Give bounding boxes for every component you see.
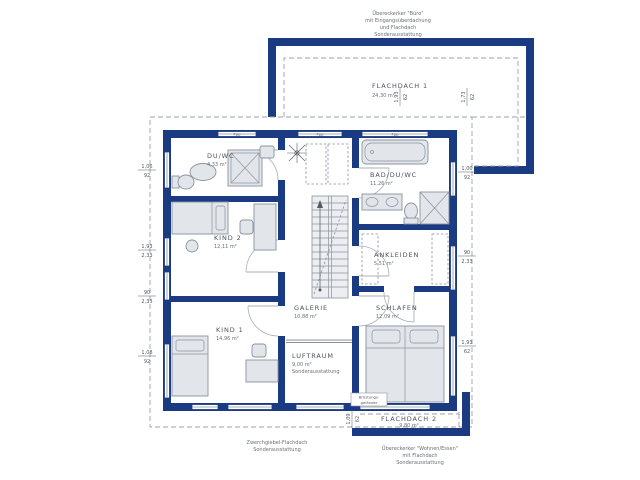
room-area-ankleiden: 5,51 m²	[374, 261, 394, 267]
dim-text: 1,08	[141, 350, 152, 356]
room-label-ankleiden: ANKLEIDEN	[374, 251, 419, 259]
dimensions-left: 1,06 92 1,93 2,33 90 2,33 1,08 92	[138, 164, 156, 365]
room-label-galerie: GALERIE	[294, 304, 328, 312]
room-area-kind2: 12,11 m²	[214, 244, 237, 250]
double-washbasin-icon	[362, 194, 402, 210]
annotation-bottom-right: Übereckerker "Wohnen/Essen" mit Flachdac…	[382, 445, 458, 466]
dim-text: 62	[403, 94, 409, 100]
room-area-schlafen: 12,09 m²	[376, 314, 399, 320]
bed-icon	[172, 336, 208, 396]
kind1-furniture	[172, 336, 278, 396]
dim-text: 92	[464, 175, 470, 181]
room-label-flachdach2: FLACHDACH 2	[381, 415, 437, 423]
gallery-railing	[286, 340, 352, 343]
dim-text: 1,00	[461, 166, 472, 172]
annotation-top-line1: Übereckerker "Büro"	[372, 10, 423, 17]
annotation-top-line2: mit Eingangsüberdachung	[365, 18, 431, 24]
toilet-tank-icon	[404, 218, 418, 224]
room-area-duwc: 4,33 m²	[207, 162, 227, 168]
room-area-flachdach2: 9,80 m²	[399, 423, 419, 429]
railing-label: Brüstungs- geländer	[351, 393, 387, 406]
stool-icon	[186, 240, 198, 252]
floorplan-canvas: Übereckerker "Büro" mit Eingangsüberdach…	[0, 0, 640, 480]
room-label-luftraum: LUFTRAUM	[292, 352, 334, 360]
staircase	[312, 196, 348, 298]
annotation-br-line2: mit Flachdach	[402, 453, 437, 459]
dim-text: 62	[355, 416, 361, 422]
ankleiden-wardrobes	[362, 234, 448, 284]
room-area-luftraum: 9,00 m²	[292, 362, 312, 368]
annotation-bottom-center: Zwerchgiebel-Flachdach Sonderausstattung	[247, 440, 308, 453]
annotation-bc-line1: Zwerchgiebel-Flachdach	[247, 440, 308, 446]
dimensions-right: 1,00 92 90 2,33 1,93 62	[458, 166, 476, 355]
dim-text: 90	[464, 250, 470, 256]
desk-icon	[254, 204, 276, 250]
railing-label-line2: geländer	[361, 400, 378, 405]
annotation-br-line1: Übereckerker "Wohnen/Essen"	[382, 445, 458, 452]
dim-text: 2,33	[141, 299, 152, 305]
dim-text: 92	[144, 173, 150, 179]
annotation-top-line4: Sonderausstattung	[374, 32, 422, 38]
railing-label-line1: Brüstungs-	[359, 395, 380, 400]
dim-text: 2,33	[461, 259, 472, 265]
dim-text: 92	[144, 359, 150, 365]
desk-icon	[246, 360, 278, 382]
room-label-duwc: DU/WC	[207, 152, 234, 160]
dim-text: 62	[470, 94, 476, 100]
bathtub-icon	[362, 140, 428, 164]
dim-text: 62	[464, 349, 470, 355]
corner-basin-icon	[260, 146, 274, 158]
chair-icon	[252, 344, 266, 357]
room-label-bad: BAD/DU/WC	[370, 171, 417, 179]
room-label-kind2: KIND 2	[214, 234, 242, 242]
dim-text: 90	[144, 290, 150, 296]
room-note-luftraum: Sonderausstattung	[292, 369, 340, 375]
chair-icon	[240, 220, 253, 234]
dim-text: 1,93	[394, 91, 400, 102]
dim-text: 1,73	[461, 91, 467, 102]
window-type-label-2: Fpp	[316, 132, 324, 137]
room-area-kind1: 14,96 m²	[216, 336, 239, 342]
dim-text: 2,33	[141, 253, 152, 259]
plant-icon	[287, 143, 307, 163]
dimensions-top: 1,93 62 1,73 62	[394, 88, 476, 106]
dim-text: 1,93	[141, 244, 152, 250]
room-area-flachdach1: 24,30 m²	[372, 93, 395, 99]
dim-text: 1,09	[346, 413, 352, 424]
room-area-galerie: 10,88 m²	[294, 314, 317, 320]
room-area-bad: 11,26 m²	[370, 181, 393, 187]
annotation-top-line3: und Flachdach	[380, 25, 417, 31]
dim-text: 1,93	[461, 340, 472, 346]
annotation-top: Übereckerker "Büro" mit Eingangsüberdach…	[365, 10, 431, 38]
toilet-icon	[178, 175, 194, 189]
annotation-br-line3: Sonderausstattung	[396, 460, 444, 466]
toilet-icon	[405, 203, 418, 219]
room-label-schlafen: SCHLAFEN	[376, 304, 418, 312]
bed-icon	[172, 202, 228, 234]
annotation-bc-line2: Sonderausstattung	[253, 447, 301, 453]
dimensions-bottom: 1,09 62	[346, 410, 361, 428]
dim-text: 1,06	[141, 164, 152, 170]
floorplan-svg: Übereckerker "Büro" mit Eingangsüberdach…	[0, 0, 640, 480]
landing-furniture	[287, 143, 348, 184]
schlafen-furniture	[366, 326, 444, 402]
window-type-label-3: Fpp	[391, 132, 399, 137]
room-label-kind1: KIND 1	[216, 326, 244, 334]
window-type-label-1: Fpp	[233, 132, 241, 137]
